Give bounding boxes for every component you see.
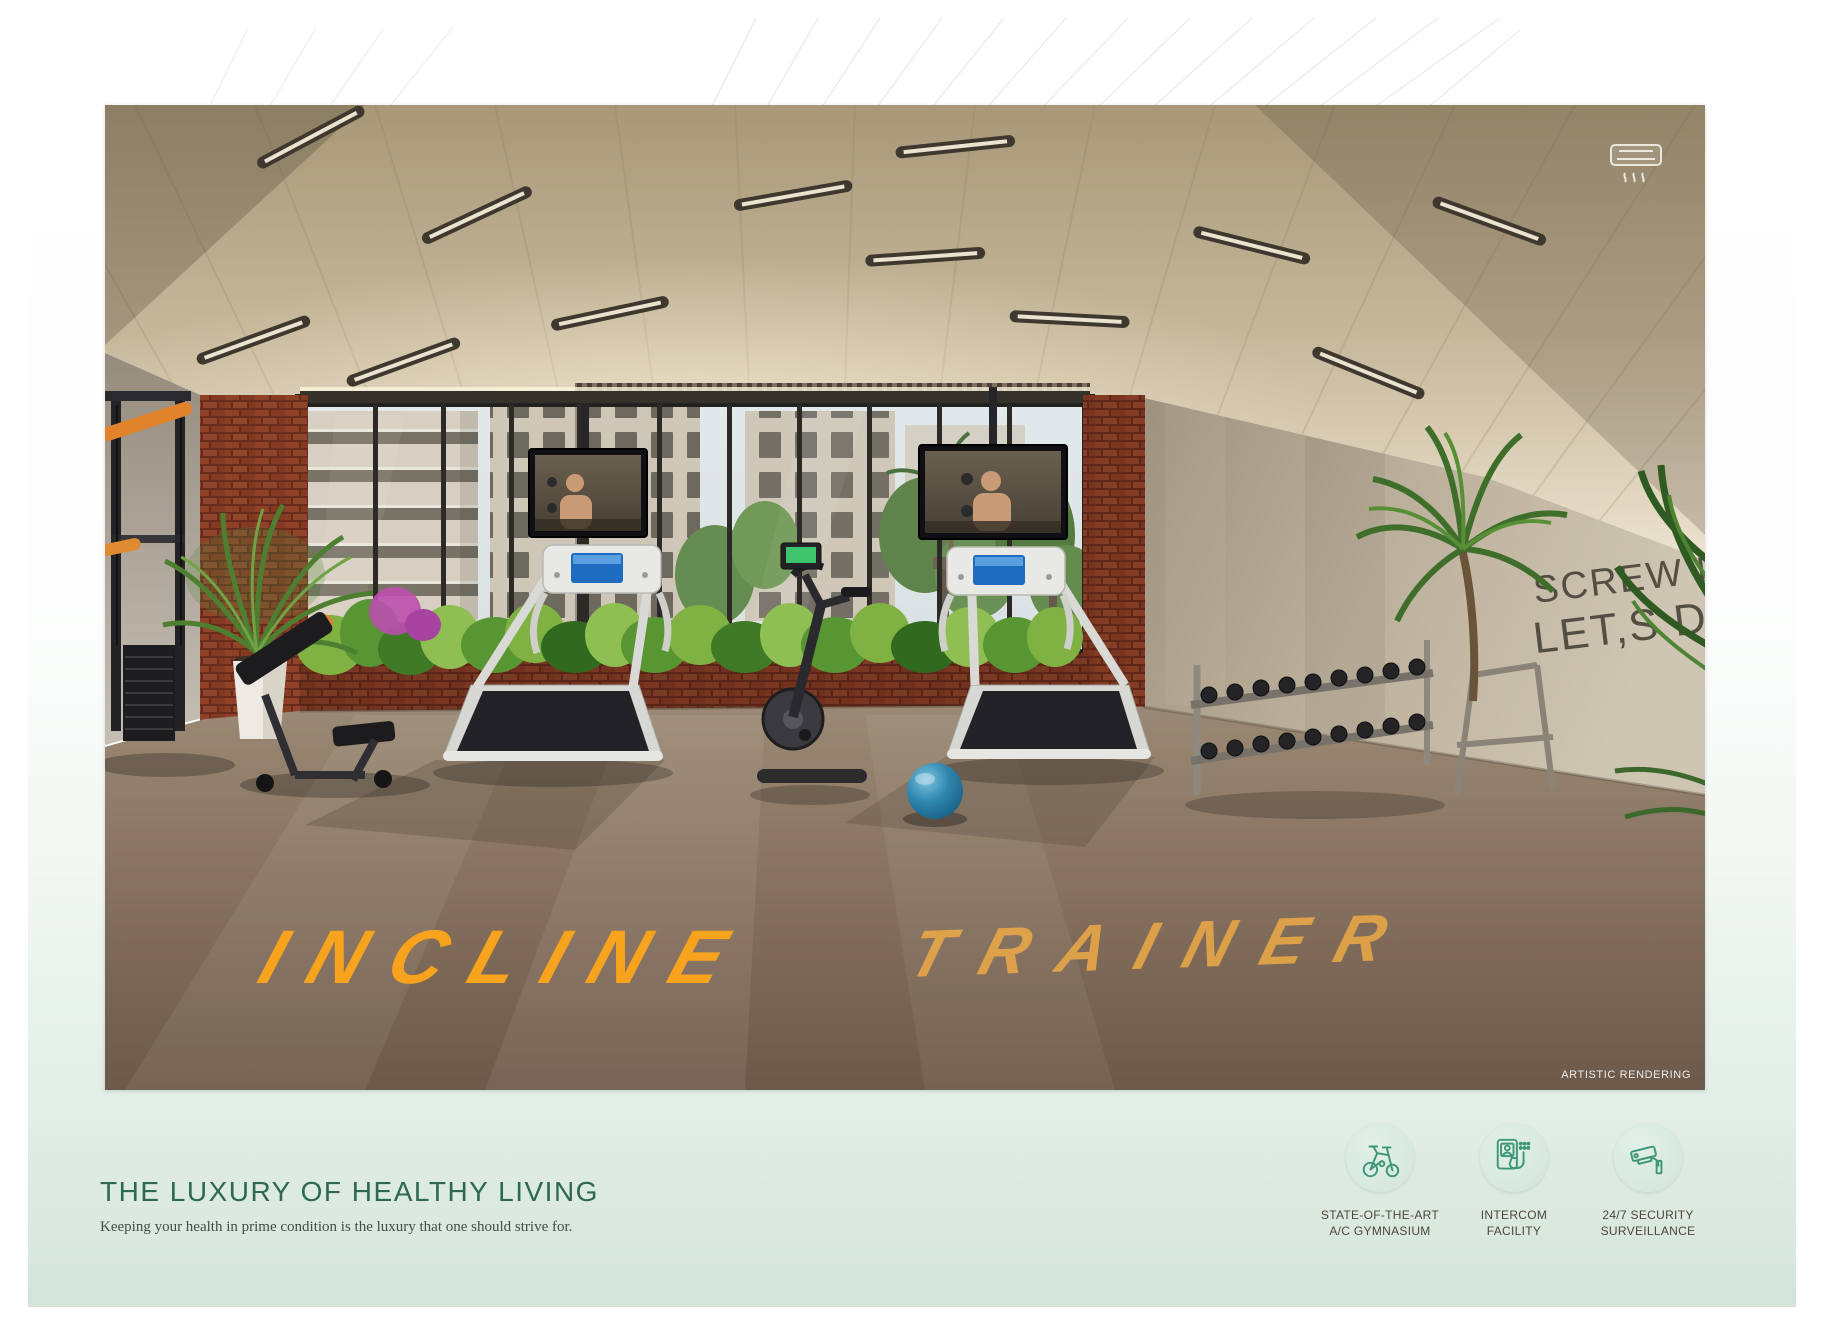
brochure-page: SCREW IT, LET,S DO IT — [0, 0, 1824, 1343]
amenity-item-intercom: INTERCOM FACILITY — [1452, 1124, 1576, 1239]
amenity-icon-circle — [1346, 1124, 1414, 1192]
bike-screen — [786, 547, 816, 563]
amenity-label: 24/7 SECURITY SURVEILLANCE — [1601, 1207, 1696, 1239]
amenity-list: STATE-OF-THE-ART A/C GYMNASIUM INTERCOM … — [1318, 1124, 1710, 1239]
gym-rendering-photo: SCREW IT, LET,S DO IT — [105, 105, 1705, 1090]
page-subtitle: Keeping your health in prime condition i… — [100, 1219, 660, 1236]
floor-word-incline: INCLINE — [250, 914, 764, 1000]
page-title: THE LUXURY OF HEALTHY LIVING — [100, 1176, 660, 1208]
amenity-item-security: 24/7 SECURITY SURVEILLANCE — [1586, 1124, 1710, 1239]
cctv-camera-icon — [1625, 1135, 1671, 1181]
footer-title-block: THE LUXURY OF HEALTHY LIVING Keeping you… — [100, 1176, 660, 1236]
intercom-icon — [1491, 1135, 1537, 1181]
amenity-label: INTERCOM FACILITY — [1481, 1207, 1547, 1239]
floor — [105, 705, 1705, 1090]
footer-band — [28, 1288, 1796, 1307]
exercise-bike-icon — [1357, 1135, 1403, 1181]
artistic-rendering-label: ARTISTIC RENDERING — [1561, 1069, 1691, 1081]
amenity-label: STATE-OF-THE-ART A/C GYMNASIUM — [1321, 1207, 1439, 1239]
amenity-icon-circle — [1480, 1124, 1548, 1192]
amenity-icon-circle — [1614, 1124, 1682, 1192]
amenity-item-gymnasium: STATE-OF-THE-ART A/C GYMNASIUM — [1318, 1124, 1442, 1239]
